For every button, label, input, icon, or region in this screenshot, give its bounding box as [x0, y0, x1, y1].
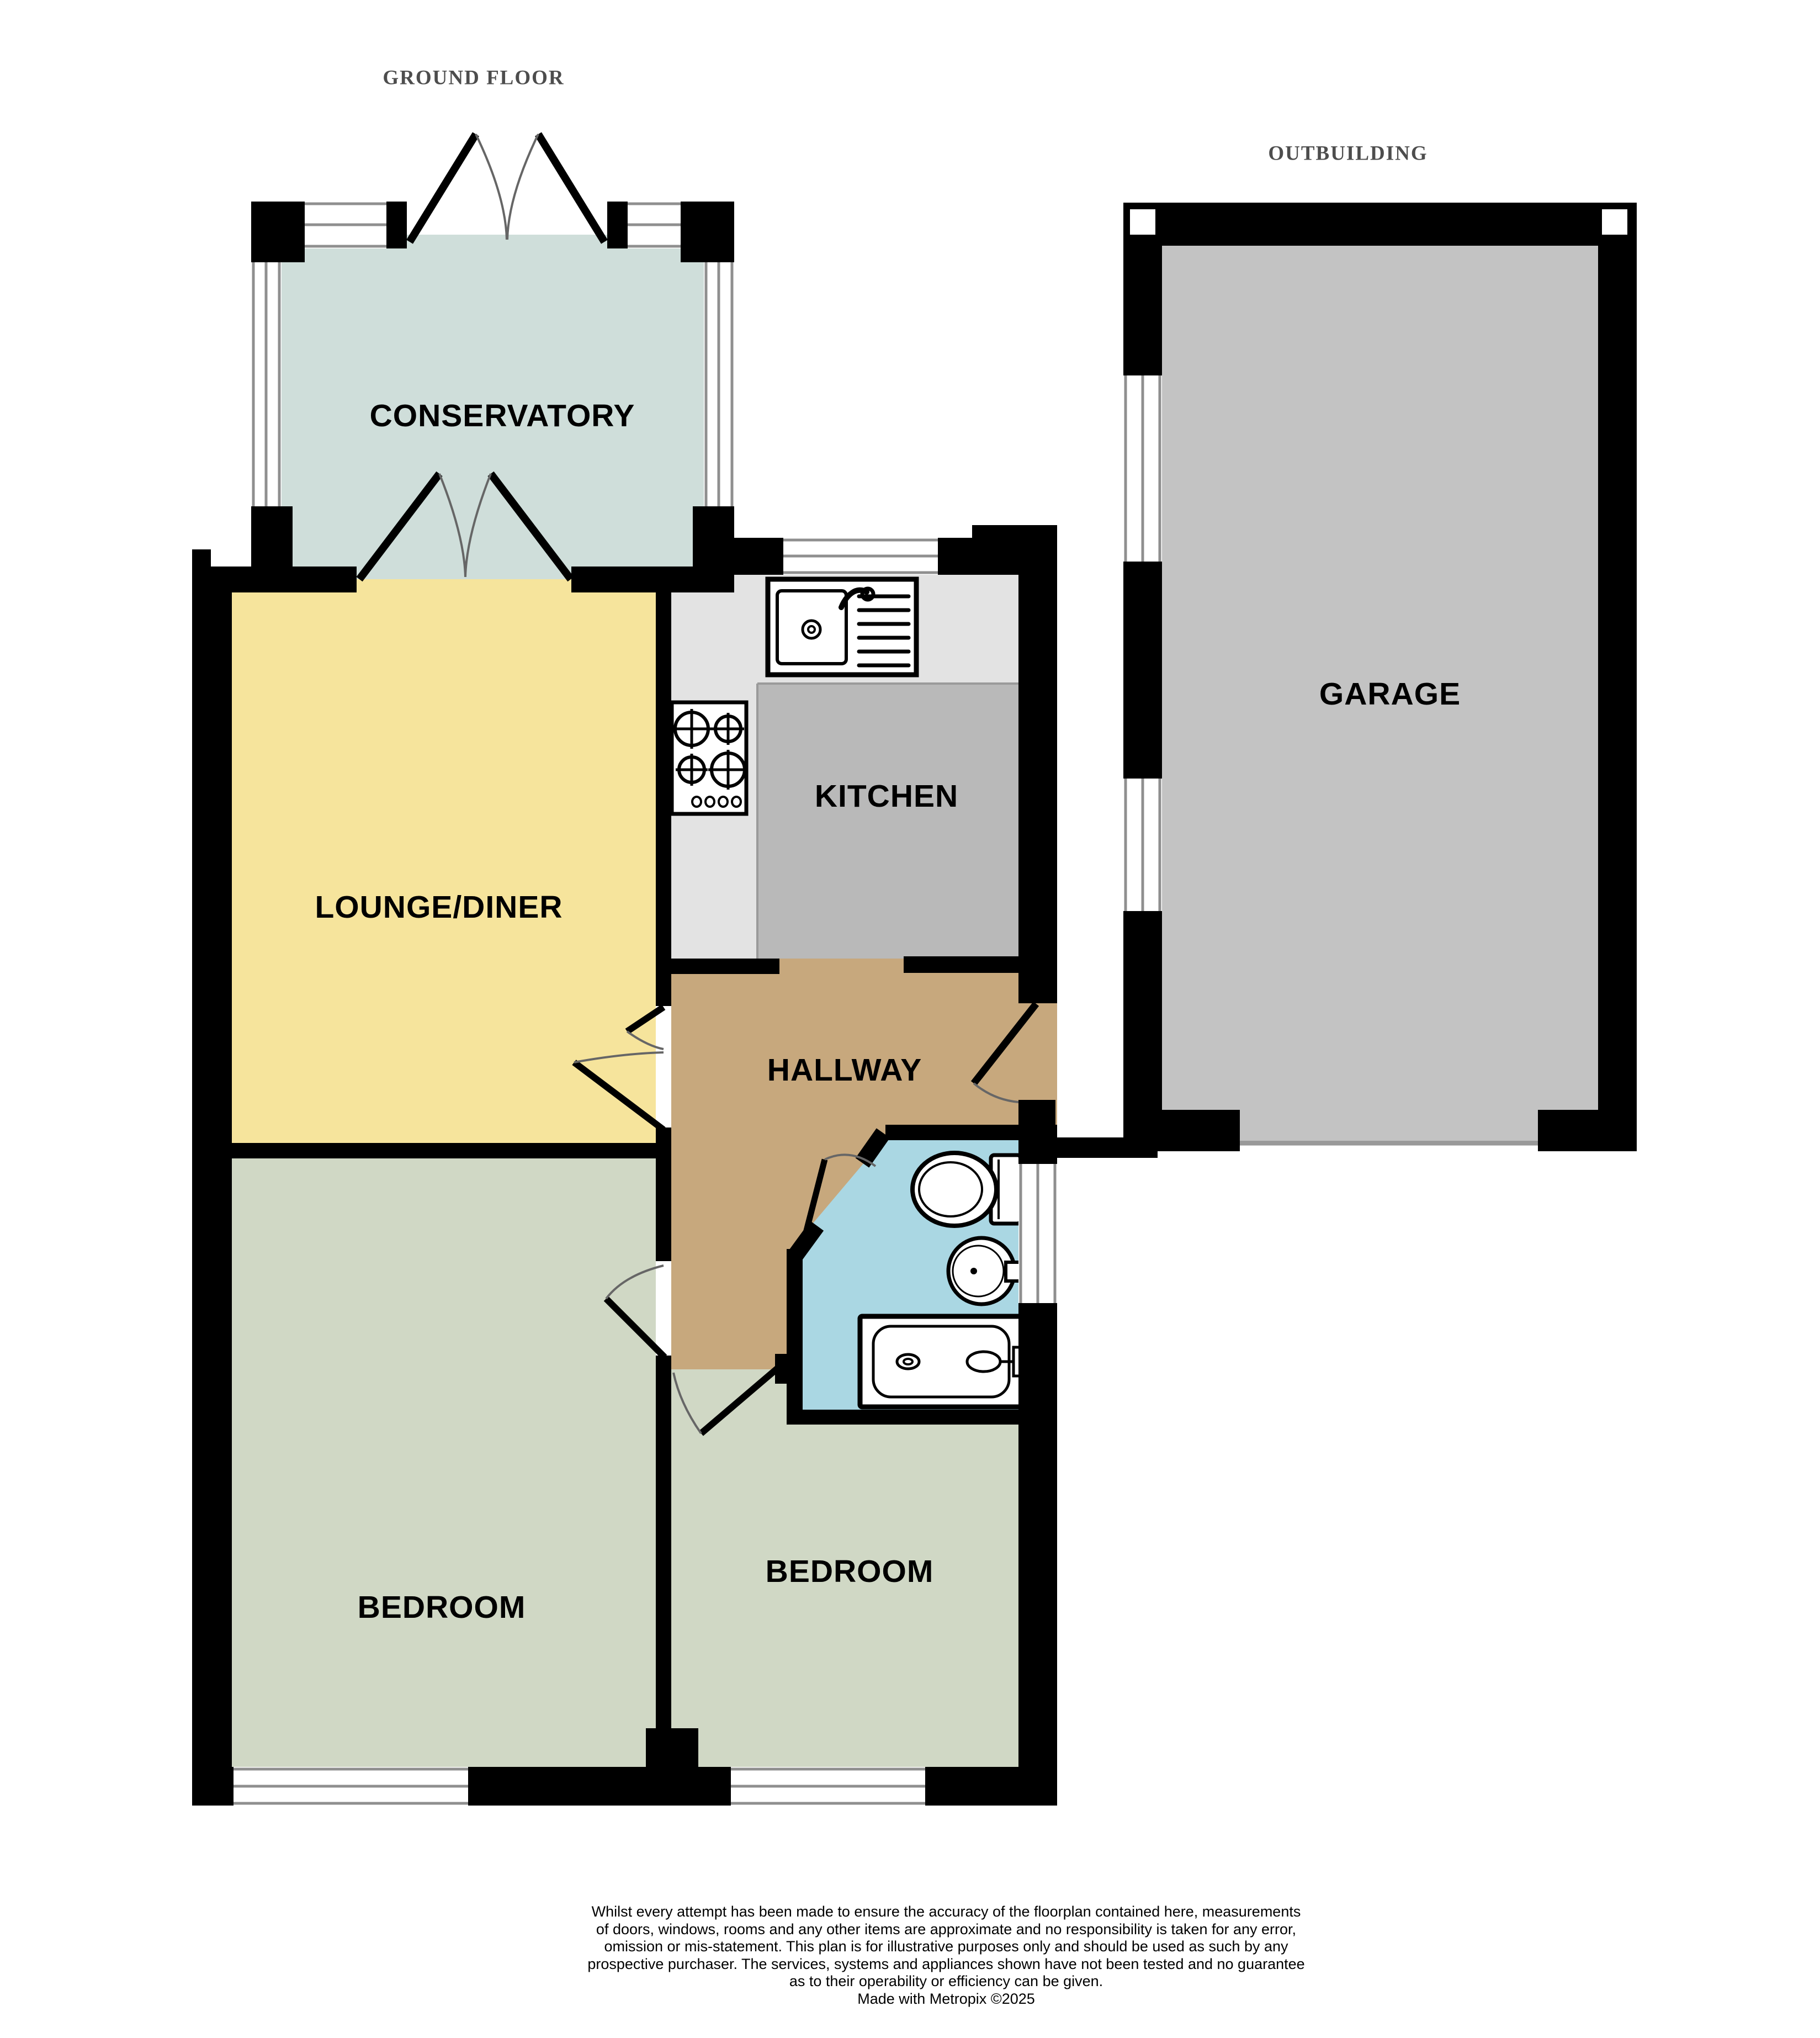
french-door-exterior — [410, 134, 604, 242]
room-label-lounge-diner: LOUNGE/DINER — [315, 889, 563, 925]
disclaimer-text: Whilst every attempt has been made to en… — [477, 1903, 1415, 1991]
hob-icon — [671, 702, 748, 814]
room-kitchen — [757, 684, 1018, 959]
toilet-icon — [912, 1153, 1021, 1226]
room-fills — [232, 235, 1598, 1767]
room-label-bedroom-1: BEDROOM — [358, 1589, 526, 1626]
bath-icon — [860, 1316, 1022, 1407]
sink-icon — [768, 579, 916, 675]
room-label-conservatory: CONSERVATORY — [370, 398, 635, 434]
ground-floor-title: GROUND FLOOR — [383, 66, 564, 90]
room-bedroom-1 — [232, 1158, 656, 1767]
room-label-garage: GARAGE — [1319, 676, 1461, 712]
room-label-hallway: HALLWAY — [767, 1052, 922, 1088]
room-label-bedroom-2: BEDROOM — [766, 1553, 934, 1590]
floorplan-page: GROUND FLOOR OUTBUILDING CONSERVATORY LO… — [0, 0, 1820, 2038]
floorplan-canvas — [0, 0, 1820, 2038]
room-label-kitchen: KITCHEN — [815, 778, 958, 814]
metropix-credit: Made with Metropix ©2025 — [857, 1991, 1035, 2008]
outbuilding-title: OUTBUILDING — [1268, 142, 1428, 166]
